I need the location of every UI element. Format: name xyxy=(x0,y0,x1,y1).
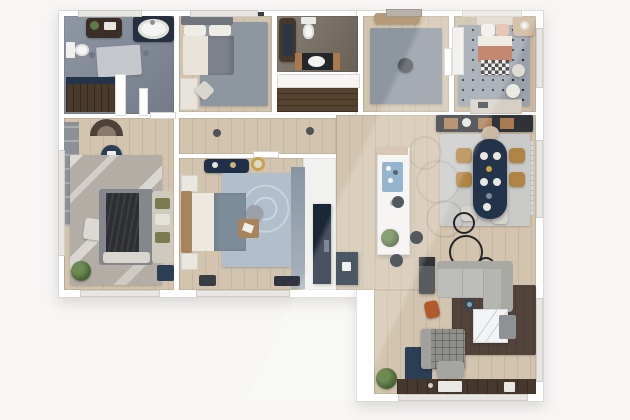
third-bed-sheet xyxy=(192,193,214,251)
shower-navy-edge xyxy=(66,77,115,84)
floor-plan-render xyxy=(0,0,630,420)
guest-bed-pillow xyxy=(184,25,206,36)
bathtub-faucet xyxy=(150,20,155,25)
wc-toilet-tank xyxy=(301,17,316,24)
sideboard-bowl xyxy=(462,118,471,127)
floor-circle-pattern xyxy=(408,136,442,170)
window-right-living xyxy=(536,298,543,382)
table-plate xyxy=(480,178,488,186)
guest-desk xyxy=(180,78,198,110)
window-right-dining xyxy=(536,140,543,218)
bench-white-box xyxy=(504,382,515,392)
armchair-ottoman xyxy=(437,361,464,378)
coffee-table-gray-tier xyxy=(499,315,516,339)
shower-partition-stub xyxy=(139,88,148,116)
wc-cabinet-front xyxy=(283,24,293,56)
nightstand xyxy=(181,175,198,192)
gold-mirror xyxy=(251,157,265,171)
kids-desk-chair xyxy=(506,84,520,98)
window-top-kids xyxy=(462,10,522,17)
bathroom-toilet-bowl xyxy=(75,44,89,56)
table-deco xyxy=(486,193,492,199)
island-plant xyxy=(381,229,399,247)
walk-in-shower-floor xyxy=(66,84,115,112)
kids-desk-items xyxy=(478,102,488,108)
window-bottom-master xyxy=(80,290,160,297)
table-deco-gold xyxy=(486,166,492,172)
dining-chair-mustard xyxy=(456,148,472,163)
floor-speaker xyxy=(199,275,216,286)
master-bed-pillows xyxy=(103,252,150,263)
master-plant xyxy=(71,261,91,281)
third-bed-headboard xyxy=(181,191,192,253)
window-bottom-third-bedroom xyxy=(196,290,290,297)
window-top-guest xyxy=(190,10,258,17)
entry-pouf xyxy=(398,58,413,73)
table-plate xyxy=(493,152,501,160)
decor-circle xyxy=(453,212,475,234)
kids-wardrobe xyxy=(452,27,464,75)
island-wood-end xyxy=(377,147,408,155)
master-bed-dark-throw xyxy=(106,193,139,255)
bench-knob xyxy=(428,383,433,388)
ceiling-light xyxy=(306,127,314,135)
guest-bed-sheet xyxy=(183,36,208,75)
dining-chair-mustard xyxy=(509,148,525,163)
nightstand xyxy=(181,253,198,270)
third-bedroom-wardrobe xyxy=(291,167,305,289)
window-bench-strip xyxy=(397,379,536,394)
floor-drain xyxy=(143,50,149,56)
bar-stool xyxy=(410,231,423,244)
daybed-cushion-olive xyxy=(155,198,170,209)
room-hall-closet-floor xyxy=(277,88,358,112)
kids-bed-pillow xyxy=(481,24,495,36)
nook-white-object xyxy=(342,262,351,271)
master-navy-bench xyxy=(157,265,174,281)
shower-partition-wall xyxy=(115,74,126,116)
window-top-bathroom xyxy=(78,10,142,17)
window-bottom-living xyxy=(398,394,528,401)
tv-console-top xyxy=(419,257,435,266)
wc-toilet-bowl xyxy=(303,24,314,39)
side-table-deco xyxy=(467,302,472,307)
bar-stool xyxy=(392,196,404,208)
sideboard-wood-door xyxy=(500,118,514,129)
table-plate xyxy=(493,178,501,186)
front-door xyxy=(386,9,422,17)
kids-bed-checkered-throw xyxy=(481,60,509,75)
dresser-deco xyxy=(212,162,218,168)
ceiling-light xyxy=(213,129,221,137)
window-left-master xyxy=(58,150,65,256)
wc-vanity-wood-side xyxy=(333,53,340,70)
window-right-kids xyxy=(536,28,543,88)
tray-bottle xyxy=(388,178,393,183)
navy-dresser xyxy=(204,159,249,173)
dining-chair-mustard xyxy=(456,172,472,187)
guest-bed-pillow xyxy=(209,25,231,36)
tray-bottle xyxy=(393,170,398,175)
entry-door-leaf xyxy=(444,48,452,76)
wc-vanity-wood-side xyxy=(295,53,302,70)
nook-cabinet-handle xyxy=(324,240,329,252)
sofa-back-right xyxy=(501,261,513,312)
guest-bed-duvet xyxy=(208,36,234,75)
bench-white-box xyxy=(438,381,462,392)
living-plant xyxy=(376,368,397,389)
table-plate xyxy=(483,203,491,211)
wc-sink-basin xyxy=(308,56,325,67)
dining-chair-mustard xyxy=(509,172,525,187)
door-leaf xyxy=(150,112,176,119)
dining-chair-head xyxy=(482,126,499,140)
sideboard-wood-door xyxy=(444,118,458,129)
bathroom-toilet-tank xyxy=(66,42,75,58)
daybed-cushion-white xyxy=(155,214,170,225)
vanity-plant xyxy=(90,21,99,30)
guest-bed-headboard xyxy=(181,16,233,25)
kids-lamp xyxy=(520,21,529,30)
dresser-deco xyxy=(230,162,236,168)
vanity-tray xyxy=(104,22,116,30)
room-corridor-floor xyxy=(179,118,356,154)
armchair-armrest xyxy=(421,329,431,369)
island-blue-tray xyxy=(382,162,403,192)
floor-drain xyxy=(89,52,95,58)
bath-rug xyxy=(96,45,142,78)
kids-bed-pillow xyxy=(496,24,509,36)
bar-stool xyxy=(390,254,403,267)
kids-round-chair xyxy=(512,64,525,77)
table-plate xyxy=(480,152,488,160)
daybed-cushion-olive xyxy=(155,232,170,243)
sofa-seam xyxy=(462,269,463,297)
tray-bottle xyxy=(386,166,391,171)
window-bench-dark xyxy=(274,276,300,286)
closet-sliding-door xyxy=(277,74,360,88)
